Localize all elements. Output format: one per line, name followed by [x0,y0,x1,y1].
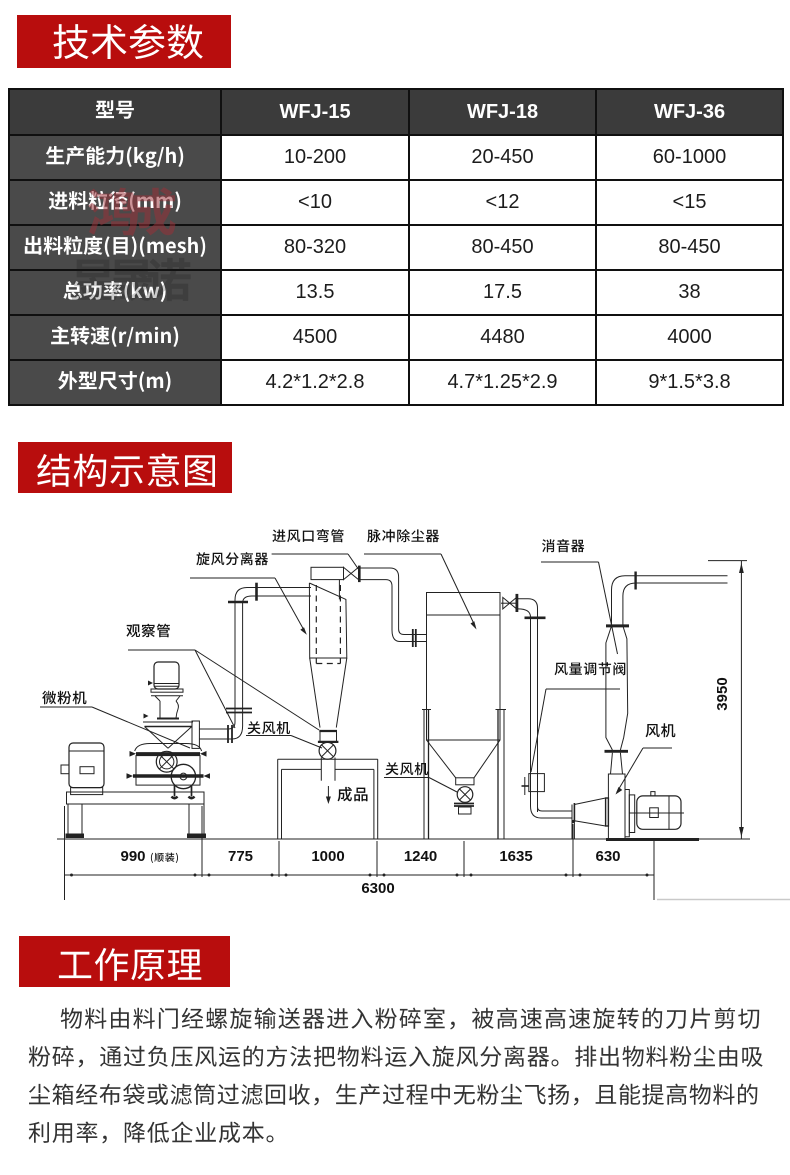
svg-text:630: 630 [595,848,620,865]
svg-text:1635: 1635 [499,848,532,865]
svg-text:990: 990 [120,848,145,865]
svg-text:3950: 3950 [714,677,731,710]
svg-text:6300: 6300 [361,880,394,897]
svg-text:1240: 1240 [404,848,437,865]
svg-text:775: 775 [228,848,253,865]
svg-text:1000: 1000 [311,848,344,865]
